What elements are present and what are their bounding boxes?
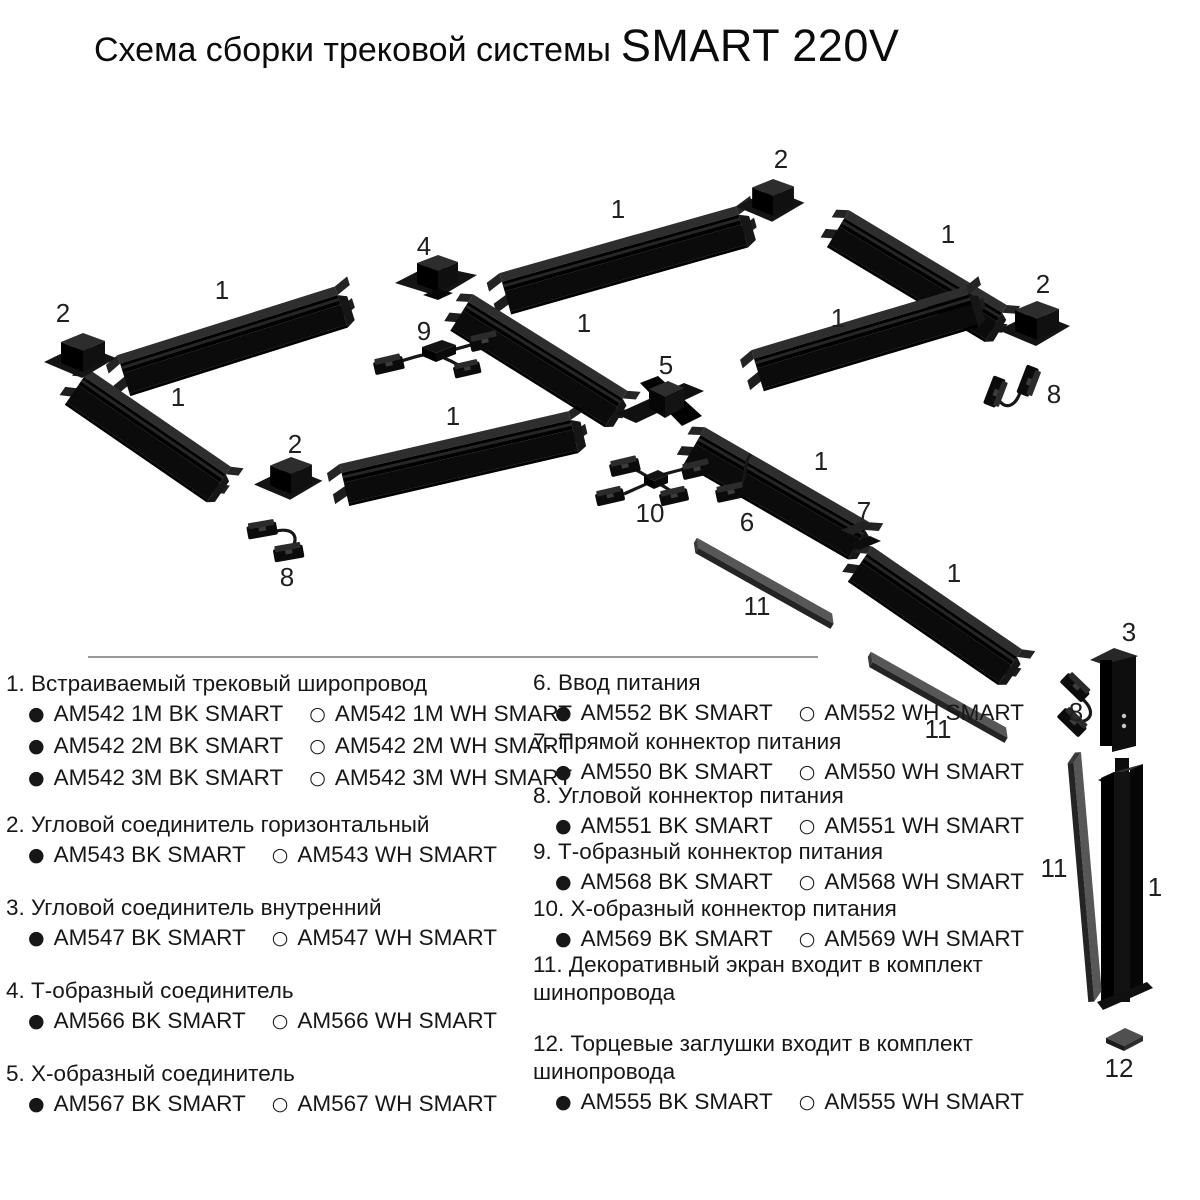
- part-number-label: 12: [1105, 1053, 1134, 1083]
- empty-circle-icon: ○: [799, 925, 816, 954]
- part-number-label: 8: [1069, 697, 1083, 727]
- part-number-label: 8: [1047, 379, 1061, 409]
- filled-circle-icon: ●: [555, 699, 572, 728]
- filled-circle-icon: ●: [28, 732, 45, 761]
- legend-item: 6. Ввод питания●AM552 BK SMART○AM552 WH …: [533, 669, 985, 729]
- product-code-text: AM568 WH SMART: [824, 867, 1024, 896]
- legend-item-title: 2. Угловой соединитель горизонтальный: [6, 811, 521, 839]
- product-code: ○AM555 WH SMART: [799, 1087, 1024, 1118]
- empty-circle-icon: ○: [799, 868, 816, 897]
- product-code: ○AM547 WH SMART: [272, 923, 497, 954]
- product-code-text: AM547 WH SMART: [297, 923, 497, 952]
- product-code: ●AM543 BK SMART: [28, 840, 246, 871]
- product-code-row: ●AM542 2M BK SMART○AM542 2M WH SMART: [6, 731, 521, 762]
- product-code-row: ●AM542 3M BK SMART○AM542 3M WH SMART: [6, 763, 521, 794]
- product-code-text: AM542 2M BK SMART: [54, 731, 284, 760]
- product-code: ●AM566 BK SMART: [28, 1006, 246, 1037]
- filled-circle-icon: ●: [555, 812, 572, 841]
- product-code-text: AM542 1M BK SMART: [54, 699, 284, 728]
- part-number-label: 1: [1148, 872, 1162, 902]
- part-number-label: 3: [1122, 617, 1136, 647]
- empty-circle-icon: ○: [272, 924, 289, 953]
- legend-item: 1. Встраиваемый трековый широпровод●AM54…: [6, 670, 521, 794]
- legend-item: 7. Прямой коннектор питания●AM550 BK SMA…: [533, 728, 985, 788]
- legend-item-title: 8. Угловой коннектор питания: [533, 782, 985, 810]
- product-code-text: AM555 BK SMART: [581, 1087, 773, 1116]
- legend-item-title: 1. Встраиваемый трековый широпровод: [6, 670, 521, 698]
- inner-corner-connector: [1090, 648, 1138, 752]
- product-code: ●AM547 BK SMART: [28, 923, 246, 954]
- legend-item-title: 4. Т-образный соединитель: [6, 977, 521, 1005]
- legend-item: 11. Декоративный экран входит в комплект…: [533, 951, 985, 1007]
- part-number-label: 2: [1036, 269, 1050, 299]
- empty-circle-icon: ○: [309, 700, 326, 729]
- product-code: ○AM552 WH SMART: [799, 698, 1024, 729]
- legend-item: 4. Т-образный соединитель●AM566 BK SMART…: [6, 977, 521, 1037]
- product-code: ●AM567 BK SMART: [28, 1089, 246, 1120]
- product-code-text: AM568 BK SMART: [581, 867, 773, 896]
- product-code-text: AM569 WH SMART: [824, 924, 1024, 953]
- product-code-text: AM567 WH SMART: [297, 1089, 497, 1118]
- end-cap: [1106, 1028, 1143, 1051]
- product-code-row: ●AM552 BK SMART○AM552 WH SMART: [533, 698, 985, 729]
- filled-circle-icon: ●: [28, 841, 45, 870]
- legend-item-title: 5. Х-образный соединитель: [6, 1060, 521, 1088]
- legend-item-title: 12. Торцевые заглушки входит в комплект …: [533, 1030, 985, 1086]
- product-code-row: ●AM566 BK SMART○AM566 WH SMART: [6, 1006, 521, 1037]
- product-code-row: ●AM567 BK SMART○AM567 WH SMART: [6, 1089, 521, 1120]
- product-code-row: ●AM568 BK SMART○AM568 WH SMART: [533, 867, 985, 898]
- product-code-text: AM552 BK SMART: [581, 698, 773, 727]
- part-number-label: 11: [1041, 853, 1068, 883]
- product-code: ○AM567 WH SMART: [272, 1089, 497, 1120]
- product-code: ●AM542 2M BK SMART: [28, 731, 283, 762]
- product-code-row: ●AM542 1M BK SMART○AM542 1M WH SMART: [6, 699, 521, 730]
- product-code-text: AM551 BK SMART: [581, 811, 773, 840]
- filled-circle-icon: ●: [555, 925, 572, 954]
- product-code-text: AM567 BK SMART: [54, 1089, 246, 1118]
- empty-circle-icon: ○: [272, 841, 289, 870]
- legend-item: 8. Угловой коннектор питания●AM551 BK SM…: [533, 782, 985, 842]
- filled-circle-icon: ●: [28, 764, 45, 793]
- filled-circle-icon: ●: [28, 1090, 45, 1119]
- corner-power-connector: [977, 349, 1048, 424]
- decorative-screen: [1067, 752, 1102, 1003]
- product-code-row: ●AM547 BK SMART○AM547 WH SMART: [6, 923, 521, 954]
- legend-item-title: 6. Ввод питания: [533, 669, 985, 697]
- empty-circle-icon: ○: [309, 764, 326, 793]
- filled-circle-icon: ●: [28, 924, 45, 953]
- product-code: ○AM543 WH SMART: [272, 840, 497, 871]
- product-code-text: AM551 WH SMART: [824, 811, 1024, 840]
- product-code-text: AM547 BK SMART: [54, 923, 246, 952]
- legend-item-title: 7. Прямой коннектор питания: [533, 728, 985, 756]
- product-code-text: AM543 WH SMART: [297, 840, 497, 869]
- empty-circle-icon: ○: [309, 732, 326, 761]
- product-code: ●AM555 BK SMART: [555, 1087, 773, 1118]
- product-code: ○AM566 WH SMART: [272, 1006, 497, 1037]
- filled-circle-icon: ●: [555, 1088, 572, 1117]
- product-code-row: ●AM543 BK SMART○AM543 WH SMART: [6, 840, 521, 871]
- legend-item: 2. Угловой соединитель горизонтальный●AM…: [6, 811, 521, 871]
- legend-item: 3. Угловой соединитель внутренний●AM547 …: [6, 894, 521, 954]
- product-code: ●AM542 3M BK SMART: [28, 763, 283, 794]
- product-code-text: AM555 WH SMART: [824, 1087, 1024, 1116]
- empty-circle-icon: ○: [799, 699, 816, 728]
- legend-item: 12. Торцевые заглушки входит в комплект …: [533, 1030, 985, 1118]
- legend-item-title: 10. Х-образный коннектор питания: [533, 895, 985, 923]
- empty-circle-icon: ○: [799, 812, 816, 841]
- product-code-text: AM543 BK SMART: [54, 840, 246, 869]
- legend-item-title: 9. Т-образный коннектор питания: [533, 838, 985, 866]
- product-code-row: ●AM555 BK SMART○AM555 WH SMART: [533, 1087, 985, 1118]
- legend-right-column: 6. Ввод питания●AM552 BK SMART○AM552 WH …: [533, 0, 985, 1200]
- product-code-text: AM552 WH SMART: [824, 698, 1024, 727]
- product-code: ○AM568 WH SMART: [799, 867, 1024, 898]
- legend-item-title: 3. Угловой соединитель внутренний: [6, 894, 521, 922]
- product-code: ●AM568 BK SMART: [555, 867, 773, 898]
- legend-item-title: 11. Декоративный экран входит в комплект…: [533, 951, 985, 1007]
- legend-item: 9. Т-образный коннектор питания●AM568 BK…: [533, 838, 985, 898]
- legend-left-column: 1. Встраиваемый трековый широпровод●AM54…: [6, 0, 521, 1200]
- product-code-text: AM566 BK SMART: [54, 1006, 246, 1035]
- page: Схема сборки трековой системы SMART 220V: [0, 0, 1200, 1200]
- legend-item: 10. Х-образный коннектор питания●AM569 B…: [533, 895, 985, 955]
- product-code: ●AM552 BK SMART: [555, 698, 773, 729]
- product-code-text: AM569 BK SMART: [581, 924, 773, 953]
- legend-item: 5. Х-образный соединитель●AM567 BK SMART…: [6, 1060, 521, 1120]
- product-code-text: AM542 3M BK SMART: [54, 763, 284, 792]
- product-code-text: AM566 WH SMART: [297, 1006, 497, 1035]
- product-code: ●AM542 1M BK SMART: [28, 699, 283, 730]
- empty-circle-icon: ○: [272, 1090, 289, 1119]
- track-vertical: [1097, 758, 1153, 1010]
- filled-circle-icon: ●: [28, 700, 45, 729]
- empty-circle-icon: ○: [272, 1007, 289, 1036]
- filled-circle-icon: ●: [555, 868, 572, 897]
- filled-circle-icon: ●: [28, 1007, 45, 1036]
- empty-circle-icon: ○: [799, 1088, 816, 1117]
